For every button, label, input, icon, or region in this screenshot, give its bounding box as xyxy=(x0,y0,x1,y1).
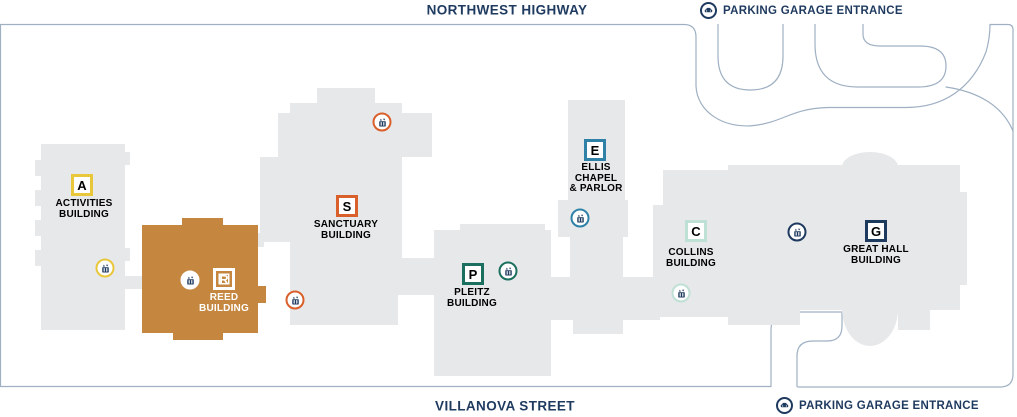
building-label-line: COLLINS xyxy=(666,248,716,259)
activities-label: ACTIVITIES BUILDING xyxy=(55,199,112,220)
reed-badge: R xyxy=(213,268,235,290)
reed-label: REED BUILDING xyxy=(199,293,249,314)
garage-u-ramp xyxy=(718,25,783,91)
elevator-icon xyxy=(499,262,518,281)
great-hall-badge: G xyxy=(865,220,887,242)
ellis-label: ELLIS CHAPEL & PARLOR xyxy=(569,163,622,195)
elevator-icon xyxy=(571,209,590,228)
south-garage-lane-right xyxy=(797,313,842,387)
building-label-line: & PARLOR xyxy=(569,184,622,195)
building-label-line: PLEITZ xyxy=(447,288,497,299)
collins-building-shape xyxy=(653,170,728,317)
elevator-glyph xyxy=(185,275,195,285)
great-hall-label: GREAT HALL BUILDING xyxy=(843,245,909,266)
building-label-line: GREAT HALL xyxy=(843,245,909,256)
sanctuary-label: SANCTUARY BUILDING xyxy=(314,220,378,241)
great-hall-north-apse xyxy=(842,152,898,182)
elevator-icon xyxy=(286,291,305,310)
campus-map: NORTHWEST HIGHWAY VILLANOVA STREET PARKI… xyxy=(0,0,1017,417)
elevator-icon xyxy=(788,223,807,242)
car-glyph xyxy=(703,5,714,16)
car-icon xyxy=(776,397,793,414)
building-label-line: SANCTUARY xyxy=(314,220,378,231)
elevator-glyph xyxy=(676,288,686,298)
car-icon xyxy=(700,2,717,19)
border-top-left xyxy=(1,25,991,126)
map-canvas xyxy=(0,0,1017,417)
building-label-line: BUILDING xyxy=(314,231,378,242)
building-label-line: REED xyxy=(199,293,249,304)
reed-building-shape xyxy=(142,218,266,340)
collins-label: COLLINS BUILDING xyxy=(666,248,716,269)
activities-badge: A xyxy=(71,174,93,196)
parking-entrance-bottom-label: PARKING GARAGE ENTRANCE xyxy=(799,400,979,412)
street-label-northwest-highway: NORTHWEST HIGHWAY xyxy=(427,3,588,18)
parking-entrance-bottom: PARKING GARAGE ENTRANCE xyxy=(776,397,979,414)
building-label-line: ELLIS xyxy=(569,163,622,174)
building-label-line: ACTIVITIES xyxy=(55,199,112,210)
elevator-glyph xyxy=(503,266,513,276)
building-label-line: BUILDING xyxy=(843,256,909,267)
building-label-line: BUILDING xyxy=(666,259,716,270)
ellis-badge: E xyxy=(584,139,606,161)
garage-loop-ramp xyxy=(815,25,946,88)
elevator-glyph xyxy=(377,117,387,127)
sanctuary-badge: S xyxy=(336,195,358,217)
pleitz-badge: P xyxy=(462,263,484,285)
building-label-line: BUILDING xyxy=(55,210,112,221)
parking-entrance-top: PARKING GARAGE ENTRANCE xyxy=(700,2,903,19)
elevator-glyph xyxy=(575,213,585,223)
pleitz-label: PLEITZ BUILDING xyxy=(447,288,497,309)
garage-loop-outer xyxy=(946,87,1013,131)
elevator-icon xyxy=(373,113,392,132)
elevator-icon xyxy=(672,284,691,303)
building-label-line: BUILDING xyxy=(199,304,249,315)
parking-entrance-top-label: PARKING GARAGE ENTRANCE xyxy=(723,5,903,17)
great-hall-south-apse xyxy=(842,272,898,346)
car-glyph xyxy=(779,400,790,411)
building-label-line: BUILDING xyxy=(447,299,497,310)
street-label-villanova-street: VILLANOVA STREET xyxy=(435,399,575,414)
elevator-icon xyxy=(96,259,115,278)
elevator-glyph xyxy=(792,227,802,237)
elevator-glyph xyxy=(100,263,110,273)
elevator-icon xyxy=(181,271,200,290)
collins-badge: C xyxy=(685,220,707,242)
elevator-glyph xyxy=(290,295,300,305)
